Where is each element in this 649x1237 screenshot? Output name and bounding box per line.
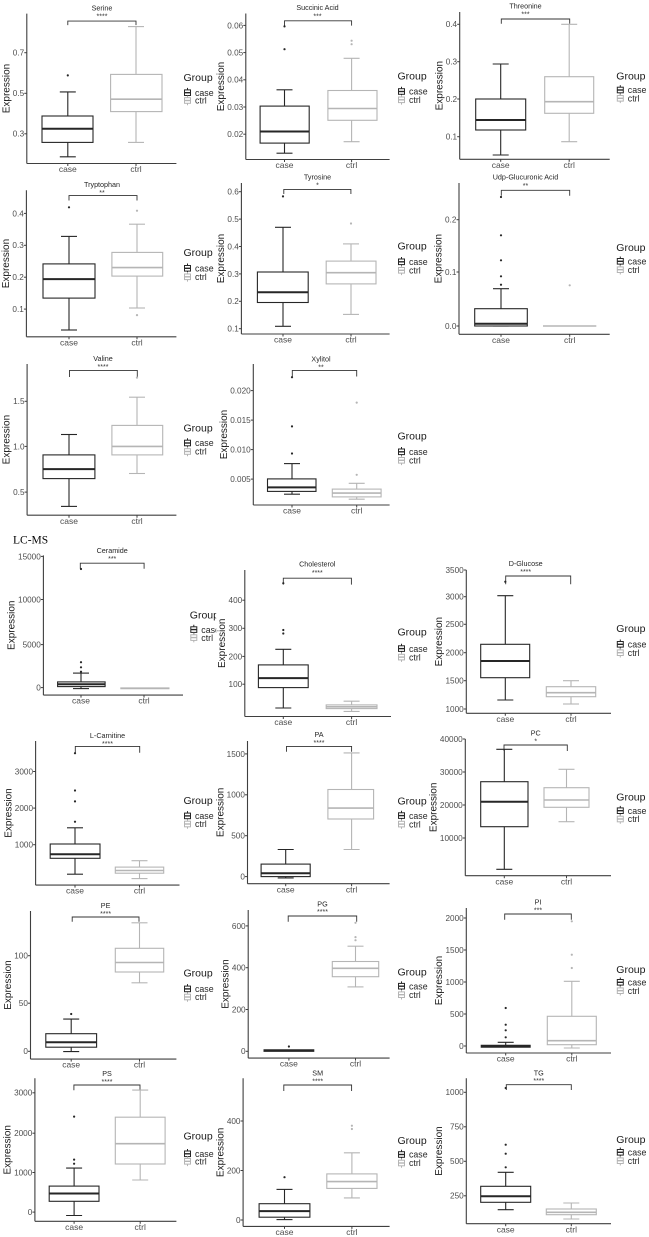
- svg-text:ctrl: ctrl: [564, 160, 575, 170]
- svg-text:Group: Group: [398, 627, 427, 639]
- svg-text:ctrl: ctrl: [195, 272, 207, 282]
- svg-text:0.1: 0.1: [227, 325, 239, 334]
- svg-text:SM: SM: [312, 1069, 323, 1078]
- svg-text:0.04: 0.04: [227, 76, 243, 85]
- svg-text:ctrl: ctrl: [628, 1156, 640, 1166]
- svg-text:ctrl: ctrl: [628, 986, 640, 996]
- svg-text:Group: Group: [184, 247, 213, 259]
- svg-text:Valine: Valine: [93, 354, 112, 363]
- svg-text:15000: 15000: [18, 552, 41, 561]
- svg-text:ctrl: ctrl: [409, 652, 421, 662]
- svg-text:ctrl: ctrl: [138, 696, 149, 706]
- svg-text:ctrl: ctrl: [409, 1158, 421, 1168]
- svg-text:ctrl: ctrl: [346, 717, 357, 727]
- svg-text:ctrl: ctrl: [409, 95, 421, 105]
- svg-text:ctrl: ctrl: [409, 990, 421, 1000]
- svg-text:****: ****: [317, 909, 328, 916]
- svg-text:ctrl: ctrl: [201, 633, 213, 643]
- svg-text:0.03: 0.03: [227, 103, 243, 112]
- svg-text:Succinic Acid: Succinic Acid: [296, 3, 338, 12]
- svg-text:40000: 40000: [440, 735, 463, 744]
- svg-text:1000: 1000: [445, 978, 464, 987]
- svg-text:****: ****: [520, 569, 531, 576]
- svg-text:ctrl: ctrl: [628, 265, 640, 275]
- svg-text:500: 500: [231, 832, 245, 841]
- svg-text:ctrl: ctrl: [195, 96, 207, 106]
- svg-text:Threonine: Threonine: [509, 2, 541, 11]
- svg-text:Expression: Expression: [434, 61, 445, 110]
- svg-text:Group: Group: [190, 609, 219, 621]
- svg-text:ctrl: ctrl: [345, 335, 356, 345]
- svg-text:30000: 30000: [440, 768, 463, 777]
- svg-text:0: 0: [236, 1216, 241, 1225]
- svg-text:Group: Group: [398, 966, 427, 978]
- svg-text:LC-MS: LC-MS: [13, 535, 48, 547]
- svg-text:case: case: [65, 1222, 83, 1232]
- svg-text:ctrl: ctrl: [566, 1054, 577, 1064]
- svg-text:0.02: 0.02: [227, 130, 243, 139]
- svg-text:0: 0: [459, 1042, 464, 1051]
- svg-text:ctrl: ctrl: [195, 447, 207, 457]
- svg-text:3000: 3000: [15, 767, 34, 776]
- svg-text:2000: 2000: [445, 649, 464, 658]
- svg-text:2000: 2000: [14, 1129, 33, 1138]
- svg-text:3000: 3000: [445, 593, 464, 602]
- svg-text:400: 400: [232, 964, 246, 973]
- svg-text:case: case: [277, 884, 295, 894]
- svg-text:Expression: Expression: [215, 1128, 226, 1177]
- svg-text:Group: Group: [616, 71, 645, 83]
- svg-text:0.3: 0.3: [13, 130, 25, 139]
- svg-text:Expression: Expression: [434, 1126, 445, 1175]
- svg-text:ctrl: ctrl: [346, 160, 357, 170]
- svg-text:case: case: [60, 337, 78, 347]
- svg-text:400: 400: [227, 1117, 241, 1126]
- svg-text:0.5: 0.5: [13, 488, 25, 497]
- svg-text:Expression: Expression: [221, 959, 232, 1008]
- svg-text:PS: PS: [102, 1069, 112, 1078]
- svg-text:PI: PI: [535, 897, 542, 906]
- svg-text:PE: PE: [101, 901, 111, 910]
- svg-text:0.5: 0.5: [227, 215, 239, 224]
- svg-text:0.020: 0.020: [230, 387, 251, 396]
- svg-text:0.3: 0.3: [446, 58, 458, 67]
- svg-text:300: 300: [229, 624, 243, 633]
- svg-text:100: 100: [229, 680, 243, 689]
- svg-text:case: case: [274, 335, 292, 345]
- svg-text:Group: Group: [616, 242, 645, 254]
- svg-text:0.5: 0.5: [13, 89, 25, 98]
- svg-text:*: *: [316, 183, 319, 190]
- svg-text:Expression: Expression: [2, 415, 13, 464]
- svg-text:PG: PG: [317, 900, 328, 909]
- svg-text:50: 50: [19, 999, 29, 1008]
- svg-text:***: ***: [313, 13, 321, 20]
- svg-text:case: case: [492, 160, 510, 170]
- svg-text:0.06: 0.06: [227, 21, 243, 30]
- svg-text:0.4: 0.4: [446, 20, 458, 29]
- svg-text:500: 500: [450, 1157, 464, 1166]
- svg-text:***: ***: [108, 556, 116, 563]
- svg-text:case: case: [497, 1054, 515, 1064]
- svg-text:Group: Group: [184, 968, 213, 980]
- svg-text:Group: Group: [184, 423, 213, 435]
- svg-text:Expression: Expression: [1, 64, 12, 113]
- svg-text:Expression: Expression: [215, 788, 226, 837]
- svg-text:0.005: 0.005: [230, 475, 251, 484]
- svg-text:****: ****: [533, 1078, 544, 1085]
- svg-text:case: case: [497, 1224, 515, 1234]
- svg-text:ctrl: ctrl: [134, 886, 145, 896]
- svg-text:2000: 2000: [445, 914, 464, 923]
- svg-text:0: 0: [23, 1047, 28, 1056]
- svg-text:case: case: [280, 1059, 298, 1069]
- svg-text:1000: 1000: [227, 791, 246, 800]
- svg-text:2500: 2500: [445, 620, 464, 629]
- svg-text:10000: 10000: [440, 834, 463, 843]
- svg-text:ctrl: ctrl: [565, 714, 576, 724]
- svg-text:ctrl: ctrl: [409, 819, 421, 829]
- svg-text:2000: 2000: [15, 804, 34, 813]
- svg-text:**: **: [523, 183, 529, 190]
- svg-text:ctrl: ctrl: [566, 1224, 577, 1234]
- svg-text:case: case: [276, 160, 294, 170]
- svg-text:Expression: Expression: [434, 234, 445, 283]
- svg-text:***: ***: [534, 907, 542, 914]
- svg-text:1500: 1500: [227, 750, 246, 759]
- svg-text:****: ****: [102, 741, 113, 748]
- svg-text:****: ****: [97, 14, 108, 21]
- svg-text:1000: 1000: [445, 1088, 464, 1097]
- svg-text:ctrl: ctrl: [561, 876, 572, 886]
- svg-text:Expression: Expression: [434, 956, 445, 1005]
- svg-text:Expression: Expression: [1, 239, 12, 288]
- svg-text:Group: Group: [616, 1134, 645, 1146]
- svg-text:case: case: [72, 696, 90, 706]
- svg-text:200: 200: [227, 1166, 241, 1175]
- svg-text:Expression: Expression: [216, 234, 227, 283]
- svg-text:20000: 20000: [440, 801, 463, 810]
- svg-text:0.7: 0.7: [13, 49, 25, 58]
- svg-text:case: case: [66, 886, 84, 896]
- svg-text:case: case: [59, 164, 77, 174]
- svg-text:case: case: [283, 506, 301, 516]
- svg-text:0.2: 0.2: [227, 297, 239, 306]
- svg-text:0.6: 0.6: [227, 188, 239, 197]
- svg-text:0.2: 0.2: [12, 273, 24, 282]
- svg-text:0.4: 0.4: [12, 209, 24, 218]
- svg-text:ctrl: ctrl: [409, 266, 421, 276]
- svg-text:case: case: [274, 717, 292, 727]
- svg-text:1000: 1000: [14, 1168, 33, 1177]
- svg-text:1.0: 1.0: [13, 442, 25, 451]
- svg-text:Serine: Serine: [92, 3, 113, 12]
- svg-text:Group: Group: [398, 431, 427, 443]
- svg-text:Group: Group: [398, 1135, 427, 1147]
- svg-text:ctrl: ctrl: [130, 164, 141, 174]
- svg-text:***: ***: [521, 12, 529, 19]
- svg-text:Group: Group: [616, 792, 645, 804]
- svg-text:0.0: 0.0: [445, 322, 457, 331]
- svg-text:Group: Group: [616, 964, 645, 976]
- svg-text:Xylitol: Xylitol: [311, 354, 331, 363]
- svg-text:Group: Group: [184, 72, 213, 84]
- svg-text:1000: 1000: [445, 705, 464, 714]
- svg-text:case: case: [276, 1227, 294, 1237]
- svg-text:Expression: Expression: [3, 1125, 14, 1174]
- svg-text:Cholesterol: Cholesterol: [299, 560, 336, 569]
- svg-text:600: 600: [232, 922, 246, 931]
- svg-text:case: case: [60, 516, 78, 526]
- svg-text:5000: 5000: [23, 641, 42, 650]
- svg-text:Expression: Expression: [3, 788, 14, 837]
- svg-text:ctrl: ctrl: [195, 1157, 207, 1167]
- svg-text:3500: 3500: [445, 566, 464, 575]
- svg-text:Group: Group: [398, 70, 427, 82]
- svg-text:case: case: [496, 714, 514, 724]
- svg-text:Expression: Expression: [429, 783, 440, 832]
- svg-text:10000: 10000: [18, 595, 41, 604]
- svg-text:ctrl: ctrl: [195, 819, 207, 829]
- svg-text:0: 0: [36, 684, 41, 693]
- svg-text:case: case: [62, 1060, 80, 1070]
- svg-text:ctrl: ctrl: [131, 337, 142, 347]
- svg-text:ctrl: ctrl: [628, 648, 640, 658]
- svg-text:Tyrosine: Tyrosine: [304, 173, 331, 182]
- svg-text:0.3: 0.3: [12, 241, 24, 250]
- svg-text:1500: 1500: [445, 946, 464, 955]
- svg-text:****: ****: [312, 570, 323, 577]
- svg-text:Group: Group: [616, 623, 645, 635]
- svg-text:0.05: 0.05: [227, 49, 243, 58]
- svg-text:0.4: 0.4: [227, 242, 239, 251]
- svg-text:****: ****: [312, 1079, 323, 1086]
- svg-text:3000: 3000: [14, 1089, 33, 1098]
- svg-text:200: 200: [232, 1005, 246, 1014]
- svg-text:0.2: 0.2: [446, 95, 458, 104]
- svg-text:Expression: Expression: [3, 960, 14, 1009]
- svg-text:ctrl: ctrl: [195, 992, 207, 1002]
- svg-text:case: case: [492, 335, 510, 345]
- svg-text:**: **: [99, 190, 105, 197]
- svg-text:ctrl: ctrl: [351, 506, 362, 516]
- svg-text:ctrl: ctrl: [628, 814, 640, 824]
- svg-text:Group: Group: [184, 795, 213, 807]
- svg-text:400: 400: [229, 596, 243, 605]
- svg-text:500: 500: [450, 1010, 464, 1019]
- svg-text:0: 0: [28, 1208, 33, 1217]
- svg-text:D-Glucose: D-Glucose: [509, 559, 543, 568]
- svg-text:0.1: 0.1: [446, 133, 458, 142]
- svg-text:750: 750: [450, 1123, 464, 1132]
- svg-text:0: 0: [240, 873, 245, 882]
- svg-text:PC: PC: [531, 729, 541, 738]
- svg-text:0.2: 0.2: [445, 216, 457, 225]
- svg-text:ctrl: ctrl: [134, 1060, 145, 1070]
- svg-text:Group: Group: [184, 1131, 213, 1143]
- svg-text:L-Carnitine: L-Carnitine: [90, 731, 125, 740]
- svg-text:250: 250: [450, 1192, 464, 1201]
- svg-text:ctrl: ctrl: [564, 335, 575, 345]
- svg-text:Expression: Expression: [217, 619, 228, 668]
- svg-text:case: case: [495, 876, 513, 886]
- svg-text:Group: Group: [398, 241, 427, 253]
- svg-text:ctrl: ctrl: [350, 1059, 361, 1069]
- svg-text:Expression: Expression: [7, 601, 18, 650]
- svg-text:ctrl: ctrl: [628, 94, 640, 104]
- svg-text:Group: Group: [398, 796, 427, 808]
- svg-text:Expression: Expression: [216, 62, 227, 111]
- svg-text:1000: 1000: [15, 841, 34, 850]
- svg-text:0.1: 0.1: [12, 305, 24, 314]
- svg-text:1.5: 1.5: [13, 397, 25, 406]
- svg-text:ctrl: ctrl: [346, 1227, 357, 1237]
- svg-text:Ceramide: Ceramide: [97, 546, 128, 555]
- svg-text:100: 100: [14, 952, 28, 961]
- svg-text:ctrl: ctrl: [131, 516, 142, 526]
- svg-text:200: 200: [229, 652, 243, 661]
- svg-text:ctrl: ctrl: [409, 456, 421, 466]
- svg-text:ctrl: ctrl: [346, 884, 357, 894]
- svg-text:0.3: 0.3: [227, 270, 239, 279]
- svg-text:PA: PA: [314, 730, 323, 739]
- svg-text:ctrl: ctrl: [135, 1222, 146, 1232]
- svg-text:Tryptophan: Tryptophan: [84, 180, 120, 189]
- svg-text:1500: 1500: [445, 677, 464, 686]
- svg-text:0.1: 0.1: [445, 268, 457, 277]
- svg-text:Expression: Expression: [434, 617, 445, 666]
- svg-text:0.015: 0.015: [230, 416, 251, 425]
- svg-text:0: 0: [241, 1047, 246, 1056]
- svg-text:TG: TG: [534, 1068, 544, 1077]
- svg-text:0.010: 0.010: [230, 446, 251, 455]
- svg-text:Expression: Expression: [219, 410, 230, 459]
- svg-text:Udp-Glucuronic Acid: Udp-Glucuronic Acid: [493, 173, 559, 182]
